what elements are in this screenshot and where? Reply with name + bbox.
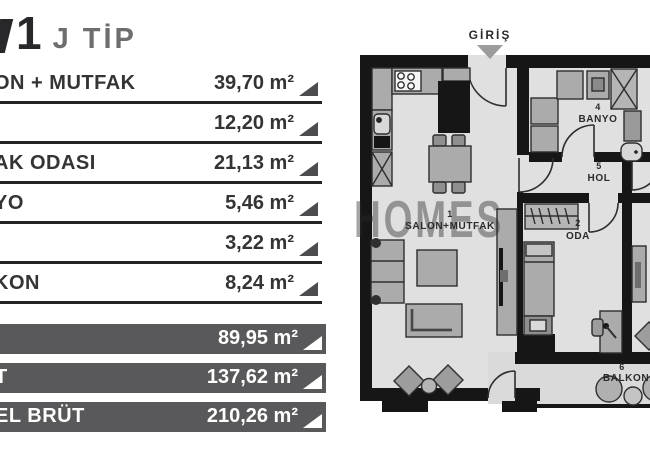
washer-icon bbox=[557, 71, 583, 99]
balcony-table-icon bbox=[624, 387, 642, 405]
kitchen-cabinet bbox=[372, 68, 392, 110]
side-table-icon bbox=[422, 379, 437, 394]
desk-chair-icon bbox=[592, 319, 603, 336]
room-number: 2 bbox=[575, 218, 581, 228]
room-number: 4 bbox=[595, 102, 601, 112]
room-name: HOL bbox=[588, 173, 611, 184]
watermark-text: HOMES bbox=[354, 191, 504, 249]
floor-plan: GİRİŞ bbox=[0, 0, 650, 450]
plant-icon bbox=[371, 295, 381, 305]
chaise-icon bbox=[406, 304, 462, 337]
entrance-label: GİRİŞ bbox=[469, 27, 512, 42]
sofa-icon bbox=[371, 240, 404, 303]
room-number: 5 bbox=[596, 161, 602, 171]
room-name: BALKON bbox=[603, 373, 649, 384]
coffee-table-icon bbox=[417, 250, 457, 286]
room-name: ODA bbox=[566, 231, 590, 242]
sink-icon bbox=[621, 143, 642, 161]
dining-table-icon bbox=[429, 146, 471, 182]
room-number: 6 bbox=[619, 362, 625, 372]
refrigerator-icon bbox=[438, 81, 470, 133]
room-name: BANYO bbox=[578, 114, 617, 125]
